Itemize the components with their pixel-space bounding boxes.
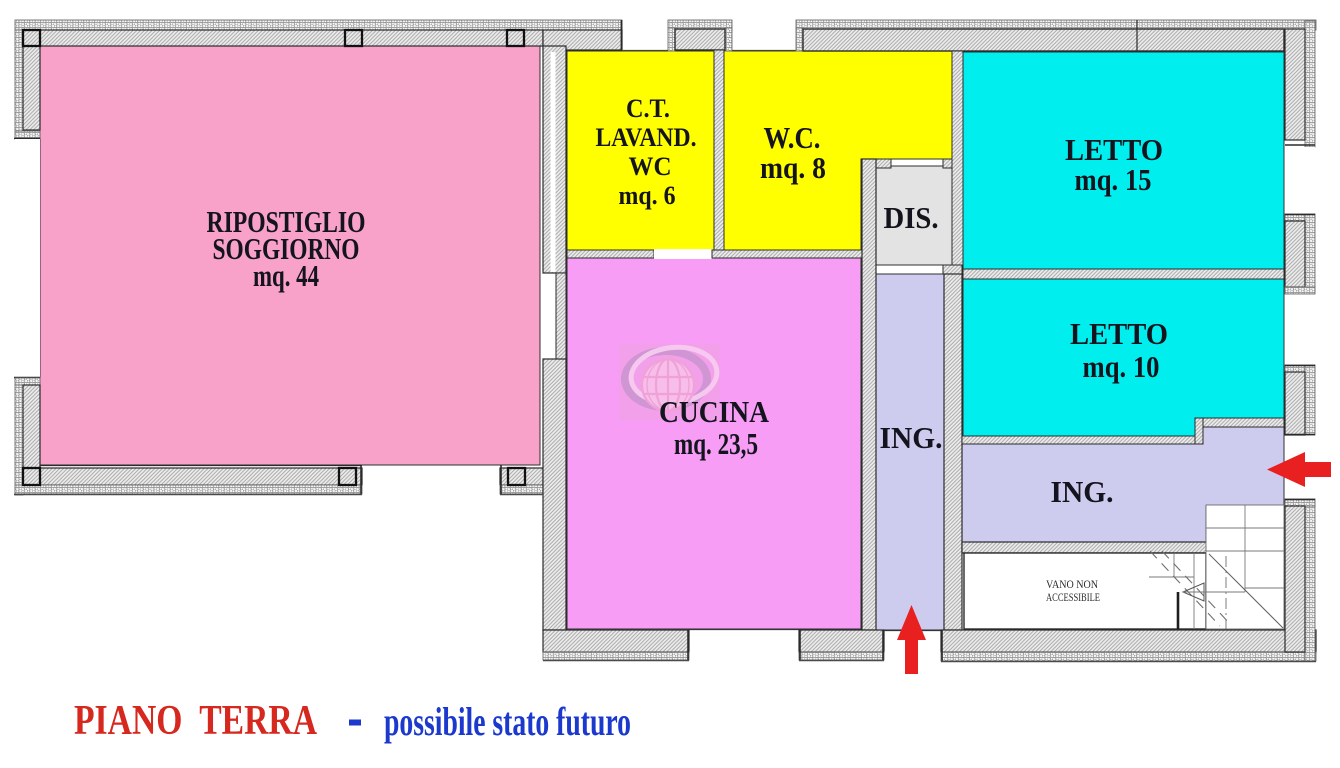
svg-text:WC: WC xyxy=(629,152,672,181)
svg-text:mq. 6: mq. 6 xyxy=(619,181,676,210)
svg-text:DIS.: DIS. xyxy=(884,200,939,235)
svg-text:C.T.: C.T. xyxy=(626,94,670,123)
svg-text:LAVAND.: LAVAND. xyxy=(596,123,697,152)
svg-text:PIANO TERRA: PIANO TERRA xyxy=(74,698,318,744)
svg-text:mq. 10: mq. 10 xyxy=(1083,349,1160,384)
svg-text:LETTO: LETTO xyxy=(1070,316,1168,351)
svg-text:mq. 15: mq. 15 xyxy=(1075,162,1152,197)
svg-text:ING.: ING. xyxy=(1051,474,1114,509)
svg-text:VANO NON: VANO NON xyxy=(1046,579,1099,591)
svg-text:ING.: ING. xyxy=(880,420,943,455)
svg-text:mq. 44: mq. 44 xyxy=(253,258,319,293)
svg-text:CUCINA: CUCINA xyxy=(659,394,770,429)
svg-text:possibile stato futuro: possibile stato futuro xyxy=(384,699,631,744)
svg-text:mq. 23,5: mq. 23,5 xyxy=(674,426,758,461)
svg-text:ACCESSIBILE: ACCESSIBILE xyxy=(1046,592,1100,604)
svg-text:mq. 8: mq. 8 xyxy=(760,150,826,185)
